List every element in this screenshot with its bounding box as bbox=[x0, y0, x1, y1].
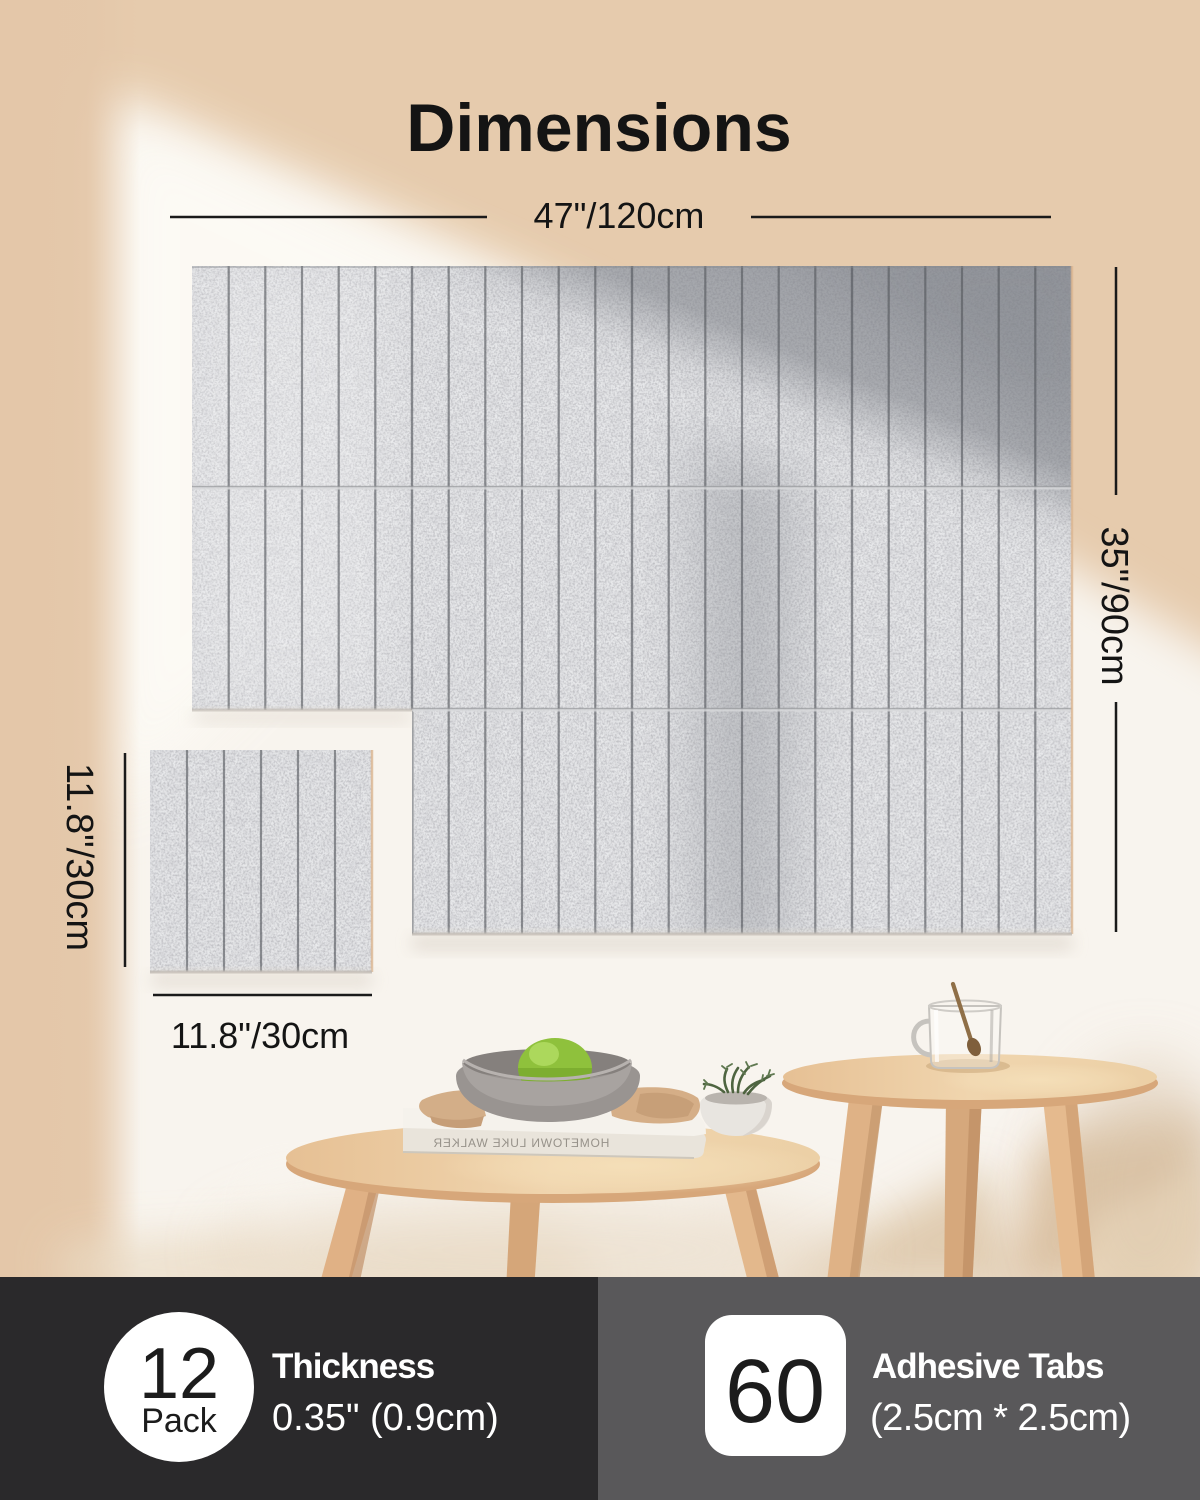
svg-text:11.8"/30cm: 11.8"/30cm bbox=[58, 763, 100, 951]
svg-text:0.35" (0.9cm): 0.35" (0.9cm) bbox=[272, 1397, 499, 1439]
svg-text:(2.5cm * 2.5cm): (2.5cm * 2.5cm) bbox=[870, 1397, 1131, 1439]
svg-text:Pack: Pack bbox=[141, 1402, 218, 1440]
svg-text:60: 60 bbox=[725, 1342, 825, 1442]
svg-text:Adhesive Tabs: Adhesive Tabs bbox=[872, 1347, 1104, 1386]
svg-text:11.8"/30cm: 11.8"/30cm bbox=[171, 1015, 349, 1056]
svg-text:Dimensions: Dimensions bbox=[406, 90, 791, 166]
svg-text:Thickness: Thickness bbox=[272, 1347, 435, 1386]
svg-text:47"/120cm: 47"/120cm bbox=[534, 195, 705, 236]
svg-text:35"/90cm: 35"/90cm bbox=[1093, 526, 1135, 685]
svg-text:HOMETOWN LUKE WALKER: HOMETOWN LUKE WALKER bbox=[433, 1136, 610, 1150]
